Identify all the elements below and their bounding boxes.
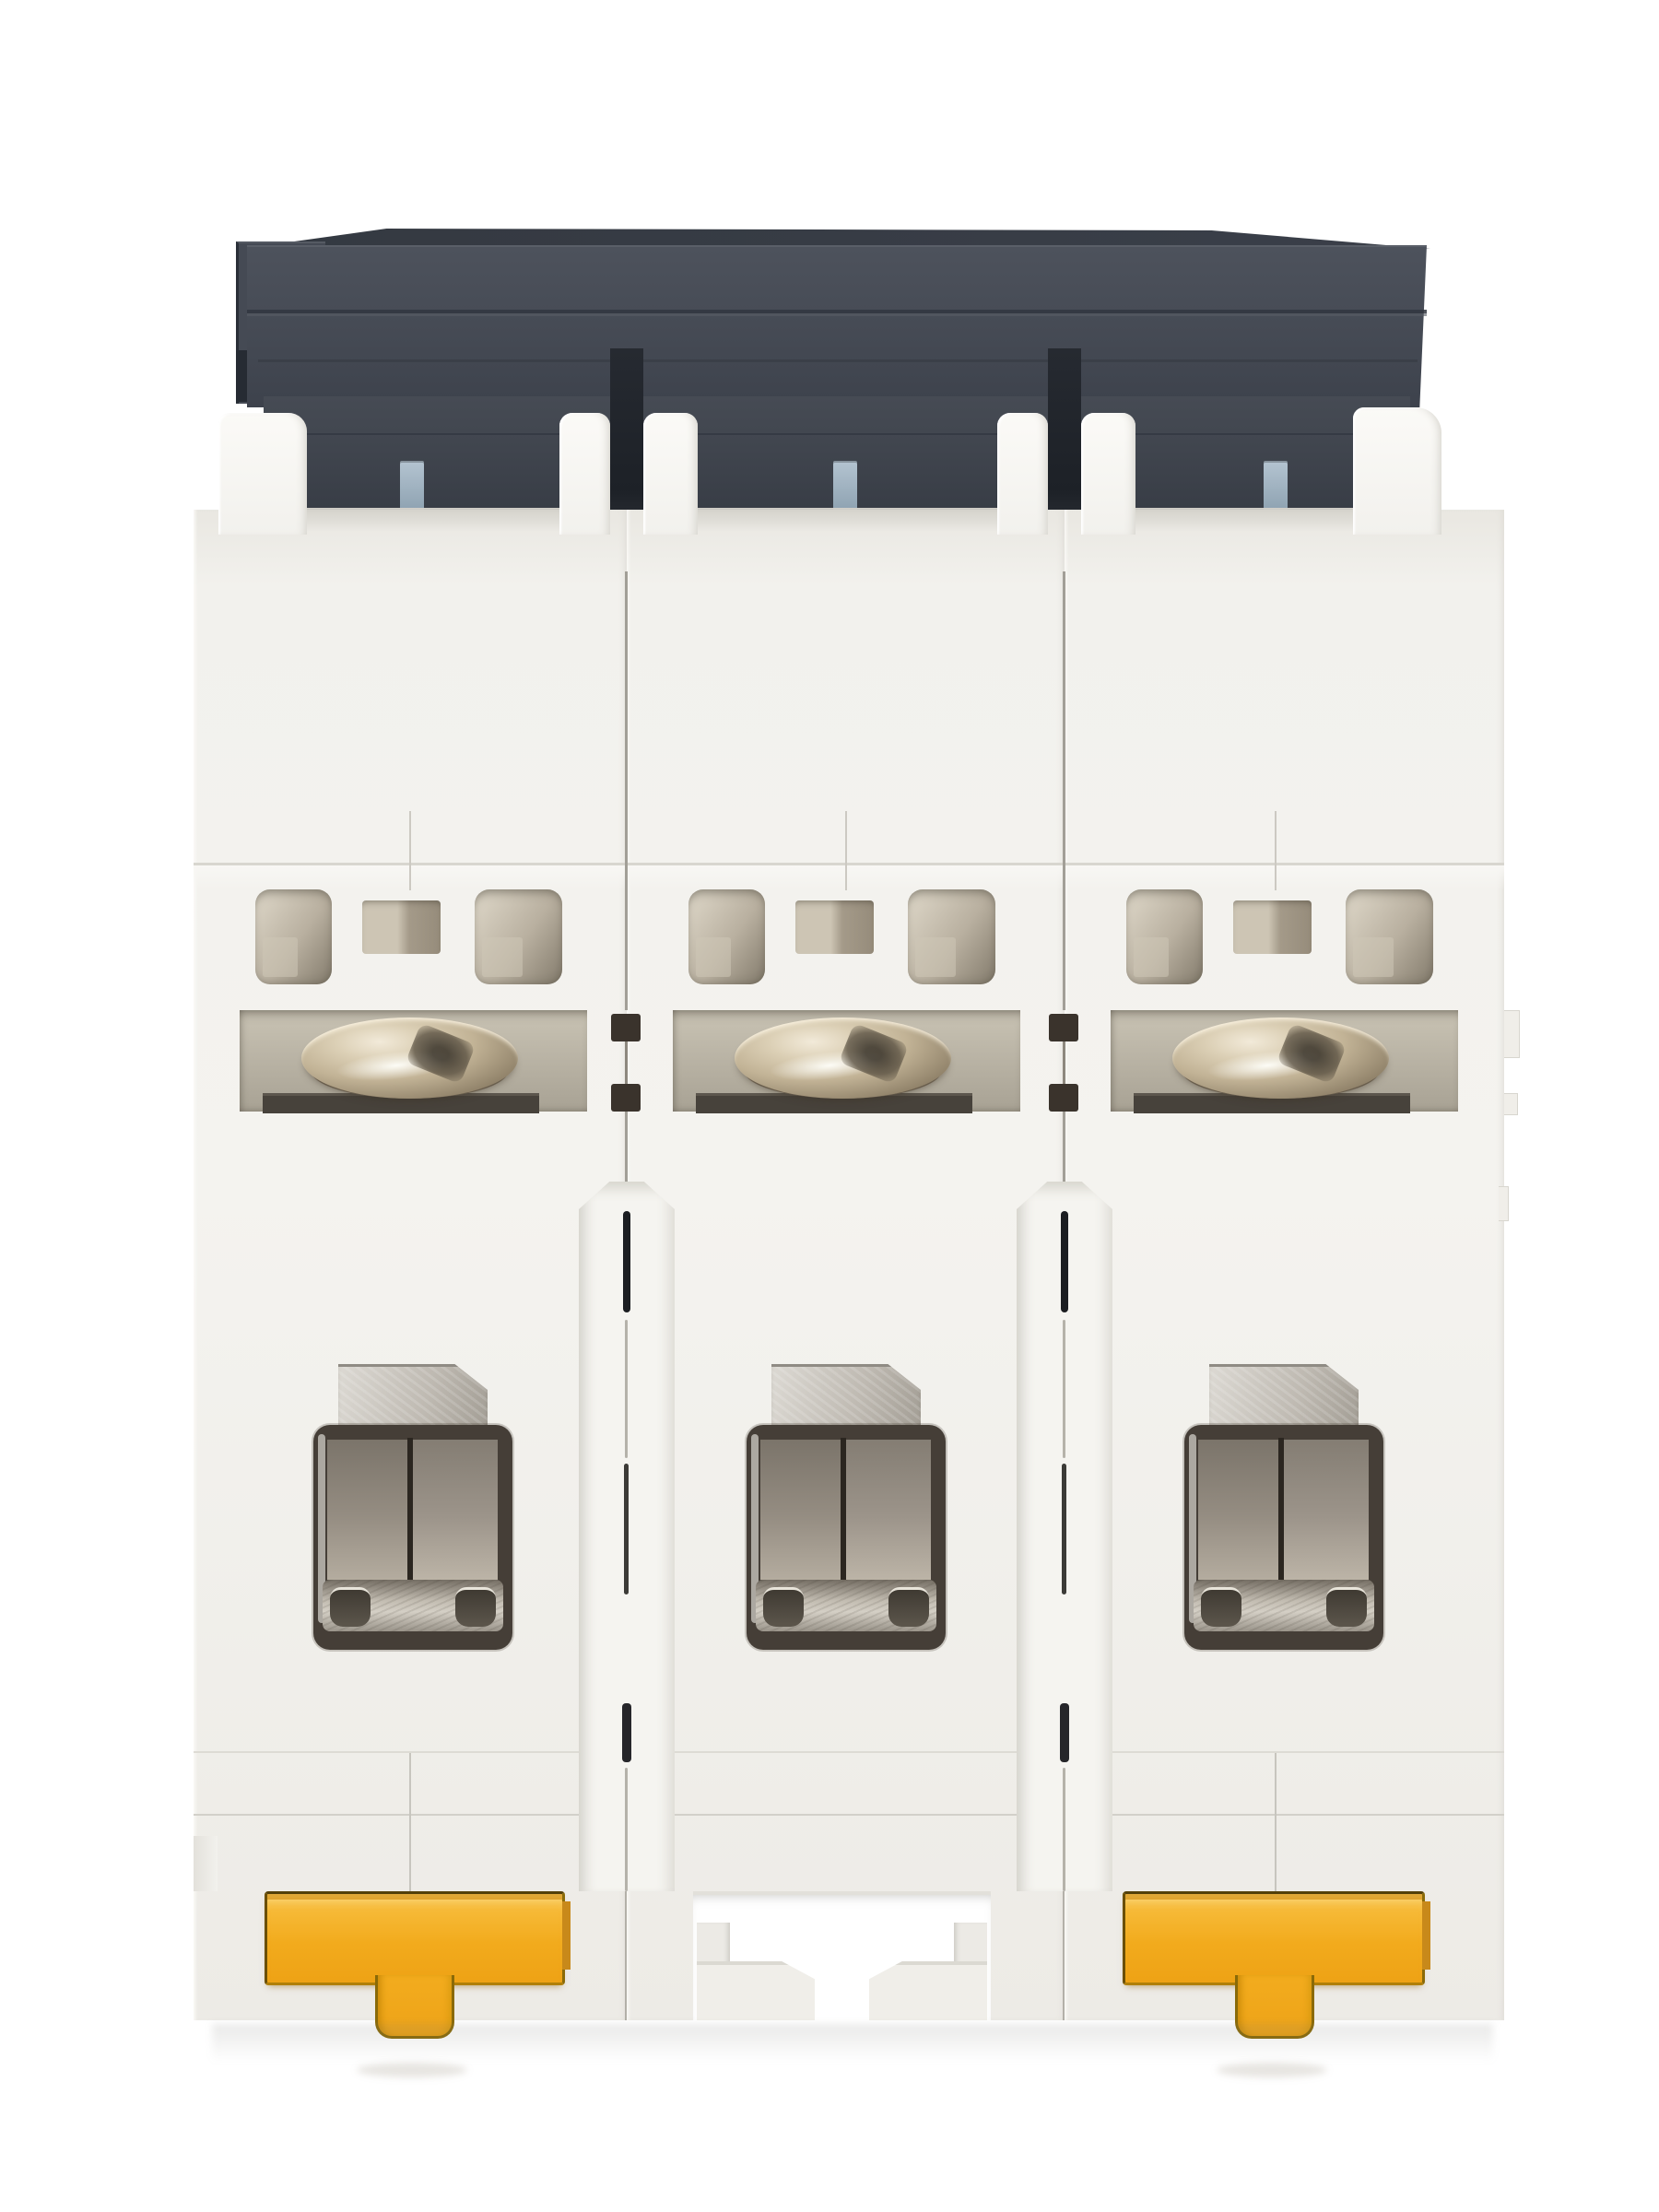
seam-dark-segment	[623, 1211, 630, 1312]
vent-slot-inner-step	[482, 937, 523, 977]
terminal-panel-right	[1284, 1440, 1369, 1580]
terminal-screw-2	[735, 1018, 951, 1099]
module-shoulder-seam1-right	[643, 413, 698, 535]
vent-slot-small-center	[362, 900, 441, 954]
module-seam-line-1	[625, 571, 628, 1010]
seam-dark-segment	[1060, 1703, 1069, 1762]
seam-vent-link	[1063, 1041, 1065, 1084]
module-shoulder-seam2-left	[997, 413, 1048, 535]
latch-hook-left-shelf	[697, 1961, 815, 2020]
vent-slot-large-right	[908, 889, 995, 984]
seam-dark-segment	[1062, 1464, 1066, 1594]
module-groove-line	[1065, 1751, 1504, 1753]
terminal-clamp-plate	[1194, 1580, 1374, 1631]
clamp-curl-left	[763, 1587, 804, 1627]
terminal-opening-1	[313, 1425, 512, 1650]
vent-slot-inner-step	[1353, 937, 1394, 977]
housing-ridge-line-2	[258, 359, 1418, 362]
right-edge-castellation	[1504, 1010, 1520, 1058]
seam-vent-square	[1049, 1084, 1078, 1112]
vent-slot-small-center	[795, 900, 874, 954]
module-groove-line	[627, 1751, 1065, 1753]
pole-module-2	[627, 510, 1065, 2020]
guide-tab-blue-2	[833, 461, 857, 510]
terminal-screw-3	[1172, 1018, 1389, 1099]
terminal-clamp-tab	[1209, 1364, 1359, 1429]
pole-module-3	[1065, 510, 1504, 2020]
module-shoulder-seam2-right	[1081, 413, 1135, 535]
latch-hook-right-shelf	[869, 1961, 987, 2020]
housing-front-face	[247, 245, 1427, 407]
din-rail-clip-right	[1123, 1891, 1425, 1985]
center-latch-cutout	[693, 1891, 991, 2020]
module-seam-line-foot	[1063, 1891, 1065, 2020]
module-shoulder-left-edge	[218, 413, 307, 535]
seam-channel-1	[579, 1182, 675, 1891]
breaker-photo	[0, 0, 1659, 2212]
vent-slot-large-right	[1346, 889, 1433, 984]
module-step-band	[1065, 865, 1504, 889]
terminal-screw-1	[301, 1018, 518, 1099]
seam-dark-segment	[1061, 1211, 1068, 1312]
seam-vent-square	[611, 1014, 641, 1041]
module-foot-line	[627, 1814, 1065, 1816]
terminal-clamp-tab	[338, 1364, 488, 1429]
seam-vent-square	[1049, 1014, 1078, 1041]
seam-channel-2	[1017, 1182, 1112, 1891]
vent-slot-large-left	[1126, 889, 1203, 984]
module-top-shadow	[307, 508, 559, 532]
clamp-curl-right	[1326, 1587, 1367, 1627]
terminal-clamp-plate	[323, 1580, 503, 1631]
clamp-curl-left	[330, 1587, 371, 1627]
vent-slot-large-left	[688, 889, 765, 984]
vent-slot-inner-step	[915, 937, 956, 977]
vent-slot-large-right	[475, 889, 562, 984]
left-edge-notch	[194, 1836, 218, 1891]
terminal-opening-3	[1184, 1425, 1383, 1650]
pole-module-1	[194, 510, 627, 2020]
terminal-panel-right	[846, 1440, 931, 1580]
din-rail-clip-left	[265, 1891, 565, 1985]
vent-slot-inner-step	[263, 937, 298, 977]
housing-skirt-line	[264, 433, 1410, 435]
guide-tab-blue-1	[400, 461, 424, 510]
terminal-panel-left	[760, 1440, 841, 1580]
module-top-shadow	[1135, 508, 1353, 532]
seam-faint-segment	[625, 1768, 628, 1891]
mold-seam	[409, 811, 411, 890]
terminal-divider	[841, 1438, 846, 1582]
mold-seam	[409, 1753, 411, 1891]
module-top-shadow	[698, 508, 997, 532]
terminal-panel-right	[413, 1440, 498, 1580]
seam-faint-segment	[625, 1320, 628, 1458]
vent-slot-large-left	[255, 889, 332, 984]
right-edge-castellation	[1504, 1093, 1518, 1115]
housing-ridge-highlight	[247, 313, 1427, 316]
clip-stem-shadow	[1217, 2063, 1327, 2077]
module-seam-line-foot	[625, 1891, 627, 2020]
clip-stem-shadow	[357, 2063, 467, 2077]
terminal-panel-left	[327, 1440, 407, 1580]
seam-vent-square	[611, 1084, 641, 1112]
module-shoulder-right-edge	[1353, 407, 1441, 535]
mold-seam	[845, 811, 847, 890]
terminal-panel-left	[1198, 1440, 1278, 1580]
clamp-curl-left	[1201, 1587, 1241, 1627]
clamp-curl-right	[455, 1587, 496, 1627]
terminal-divider	[407, 1438, 413, 1582]
mold-seam	[1275, 811, 1277, 890]
terminal-clamp-tab	[771, 1364, 921, 1429]
guide-tab-blue-3	[1264, 461, 1288, 510]
terminal-divider	[1278, 1438, 1284, 1582]
clamp-curl-right	[888, 1587, 929, 1627]
module-shoulder-seam1-left	[559, 413, 610, 535]
seam-dark-segment	[622, 1703, 631, 1762]
terminal-opening-2	[747, 1425, 946, 1650]
module-foot-line	[1065, 1814, 1504, 1816]
module-seam-line-2b	[1063, 1112, 1065, 1185]
module-seam-line-1b	[625, 1112, 628, 1185]
drop-shadow	[212, 2024, 1493, 2063]
seam-faint-segment	[1063, 1320, 1065, 1458]
seam-vent-link	[625, 1041, 628, 1084]
seam-dark-segment	[624, 1464, 629, 1594]
right-edge-step	[1499, 1186, 1509, 1221]
vent-slot-small-center	[1233, 900, 1312, 954]
terminal-clamp-plate	[756, 1580, 936, 1631]
vent-slot-inner-step	[696, 937, 731, 977]
vent-slot-inner-step	[1134, 937, 1169, 977]
mold-seam	[1275, 1753, 1277, 1891]
seam-faint-segment	[1063, 1768, 1065, 1891]
module-seam-line-2	[1063, 571, 1065, 1010]
